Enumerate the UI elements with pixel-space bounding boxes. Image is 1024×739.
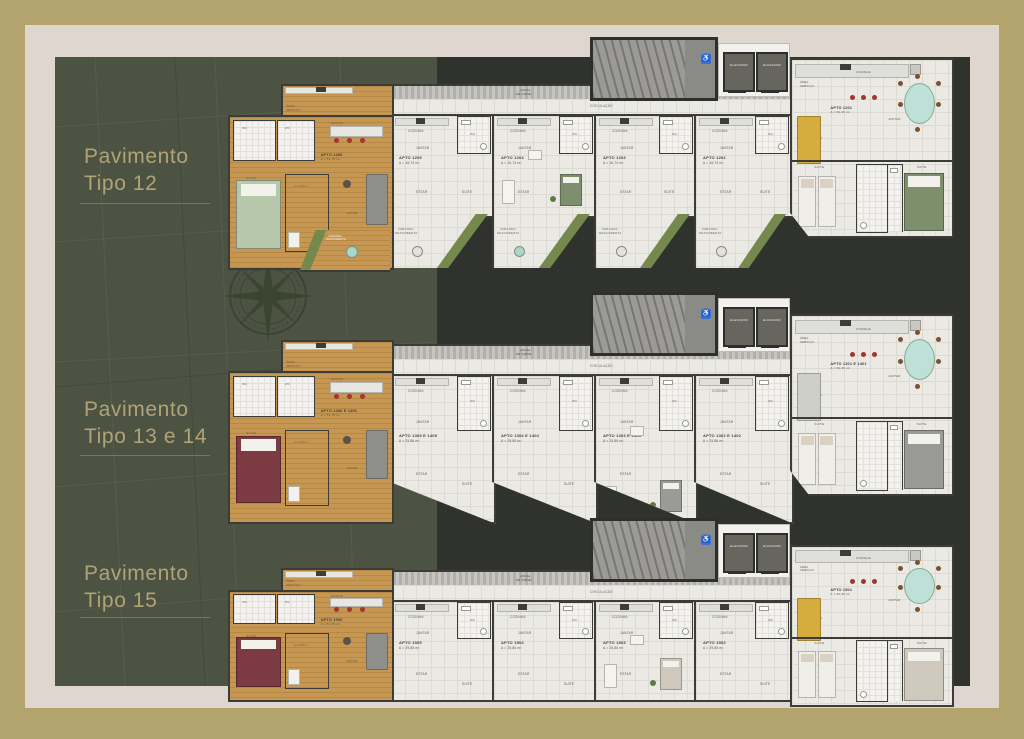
area-servico-2: SERVIÇO	[286, 584, 300, 588]
stove	[620, 604, 629, 610]
dining-chair	[915, 560, 920, 565]
bathroom	[888, 640, 903, 701]
elevator-label: ELEVADOR	[758, 545, 786, 549]
room-label-suite: SUITE	[462, 682, 472, 686]
stove	[518, 604, 527, 610]
elevator-bank: ELEVADORELEVADOR	[718, 524, 790, 578]
elevator-sill	[728, 571, 746, 574]
room-label-cozinha: COZINHA	[510, 615, 526, 619]
bed	[904, 648, 944, 701]
bed	[236, 637, 280, 687]
bathroom: WC	[457, 602, 491, 639]
sofa	[366, 633, 387, 670]
left-apartment: ÁREASERVIÇOWCWCJANTARAPTO 1506A = 51,75 …	[228, 568, 390, 698]
dining-chair	[936, 585, 941, 590]
room-label-estar: ESTAR	[416, 672, 427, 676]
sink	[663, 606, 673, 611]
floor-plan-tipo-15: LOCALAR COND.CIRCULAÇÃOWCCOZINHAJANTARAP…	[0, 0, 1024, 739]
pillow	[820, 654, 833, 662]
room-label-suite: SUITE	[564, 682, 574, 686]
room-label-estar: ESTAR	[347, 660, 358, 664]
sofa	[797, 598, 821, 641]
apartment-area: A = 52,36 m²	[830, 593, 850, 597]
apartment-body: WCWCJANTARAPTO 1506A = 51,75 m²SUITEQUAR…	[228, 590, 394, 702]
room-label-jantar: JANTAR	[720, 631, 733, 635]
studio-unit: WCCOZINHAJANTARAPTO 1504A = 25,86 m²ESTA…	[492, 600, 598, 702]
sink	[890, 644, 898, 649]
elevator-label: ELEVADOR	[725, 545, 753, 549]
elevator-cell: ELEVADOR	[723, 533, 755, 573]
bed	[660, 658, 682, 690]
bar-stool	[872, 579, 877, 584]
bathroom: WC	[233, 594, 276, 624]
ac-label-2: AR COND.	[516, 579, 532, 583]
room-label-jantar: JANTAR	[416, 631, 429, 635]
stove	[416, 604, 425, 610]
room-label-wc: WC	[285, 601, 290, 605]
single-bed	[818, 651, 836, 697]
room-label-wc: WC	[572, 619, 577, 623]
pillow	[241, 640, 276, 649]
toilet	[778, 628, 785, 635]
wheelchair-icon: ♿	[701, 535, 711, 545]
right-apartment: ÁREASERVIÇOCOZINHAJANTARAPTO 1501A = 52,…	[790, 545, 954, 707]
unit-area: A = 25,86 m²	[603, 646, 624, 650]
room-label-cozinha: COZINHA	[612, 615, 628, 619]
stove	[720, 604, 729, 610]
stair-elevator-core: ♿ELEVADORELEVADOR	[590, 518, 790, 578]
suites-wall	[792, 637, 952, 639]
bathroom	[856, 640, 888, 702]
stair-landing	[685, 521, 715, 579]
toilet	[860, 691, 867, 698]
room-label-estar: ESTAR	[518, 672, 529, 676]
bar-stool	[334, 607, 339, 612]
unit-area: A = 25,86 m²	[399, 646, 420, 650]
pillow	[663, 661, 679, 667]
bar-stool	[861, 579, 866, 584]
room-label-circulacao: CIRCULAÇÃO	[590, 590, 613, 594]
room-label-wc: WC	[470, 619, 475, 623]
unit-area: A = 25,86 m²	[703, 646, 724, 650]
room-label-cozinha: COZINHA	[856, 557, 871, 561]
room-label-quarto: QUARTO	[294, 644, 307, 648]
room-label-wc: WC	[768, 619, 773, 623]
apartment-area: A = 51,75 m²	[321, 623, 341, 627]
studio-unit: WCCOZINHAJANTARAPTO 1505A = 25,86 m²ESTA…	[390, 600, 496, 702]
desk	[288, 669, 300, 685]
room-label-wc: WC	[672, 619, 677, 623]
pillow	[908, 652, 940, 661]
dining-chair	[898, 585, 903, 590]
bar-stool	[347, 607, 352, 612]
toilet	[480, 628, 487, 635]
room-label-cozinha: COZINHA	[712, 615, 728, 619]
unit-area: A = 25,86 m²	[501, 646, 522, 650]
sink	[563, 606, 573, 611]
room-label-suite: SUITE	[917, 642, 927, 646]
dining-chair	[936, 566, 941, 571]
armchair	[343, 637, 351, 645]
bar-stool	[850, 579, 855, 584]
stove	[840, 550, 851, 556]
plant	[650, 680, 656, 686]
room-label-jantar: JANTAR	[518, 631, 531, 635]
elevator-sill	[761, 571, 779, 574]
single-bed	[798, 651, 816, 697]
sink	[461, 606, 471, 611]
quarto-room: QUARTO	[285, 633, 329, 689]
bathroom: WC	[559, 602, 593, 639]
bar-counter	[330, 598, 382, 606]
pillow	[801, 654, 814, 662]
room-label-jantar: JANTAR	[888, 599, 901, 603]
sink	[759, 606, 769, 611]
studio-unit: WCCOZINHAJANTARAPTO 1502A = 25,86 m²ESTA…	[694, 600, 794, 702]
bathroom: WC	[659, 602, 693, 639]
room-label-estar: ESTAR	[720, 672, 731, 676]
table	[630, 635, 644, 645]
room-label-wc: WC	[242, 601, 247, 605]
bathroom: WC	[755, 602, 789, 639]
room-label-estar: ESTAR	[620, 672, 631, 676]
bar-stool	[360, 607, 365, 612]
studio-unit: WCCOZINHAJANTARAPTO 1503A = 25,86 m²ESTA…	[594, 600, 698, 702]
dining-chair	[898, 566, 903, 571]
room-label-suite: SUITE	[760, 682, 770, 686]
kitchen-counter	[795, 550, 909, 563]
stove	[316, 571, 326, 576]
toilet	[582, 628, 589, 635]
room-label-cozinha: COZINHA	[408, 615, 424, 619]
room-label-suite: SUITE	[814, 642, 824, 646]
dining-table	[904, 568, 935, 605]
room-label-jantar: JANTAR	[330, 595, 343, 599]
elevator-cell: ELEVADOR	[756, 533, 788, 573]
poster-canvas: Pavimento Tipo 12 Pavimento Tipo 13 e 14…	[0, 0, 1024, 739]
area-servico-2: SERVIÇO	[800, 569, 814, 573]
toilet	[682, 628, 689, 635]
sofa	[604, 664, 617, 688]
bathroom: WC	[277, 594, 315, 624]
dining-chair	[915, 607, 920, 612]
stairs: ♿	[590, 518, 718, 582]
